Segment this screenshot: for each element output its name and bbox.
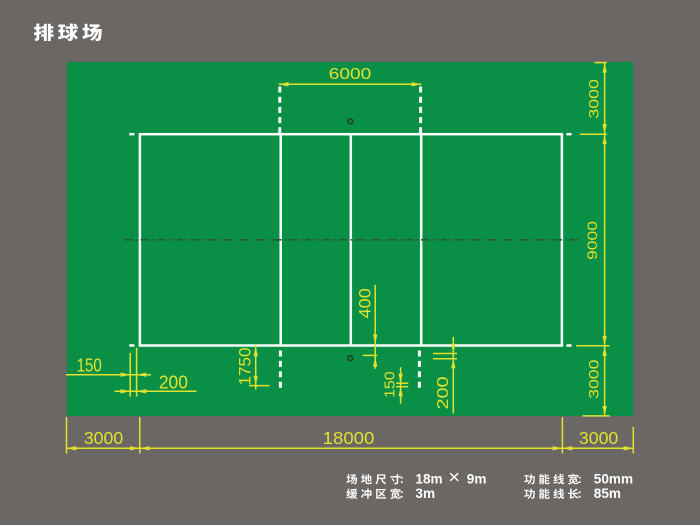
svg-text:150: 150 (383, 371, 399, 398)
svg-text:50mm: 50mm (594, 471, 633, 486)
svg-text:3m: 3m (415, 486, 435, 501)
svg-text::: : (400, 472, 404, 486)
svg-text:3000: 3000 (587, 359, 602, 399)
svg-text:3000: 3000 (586, 79, 601, 119)
svg-text:6000: 6000 (329, 66, 372, 83)
svg-text:150: 150 (77, 356, 102, 376)
svg-text::: : (578, 487, 582, 501)
svg-text:9000: 9000 (585, 221, 600, 260)
svg-text:18m: 18m (415, 471, 442, 486)
svg-text:3000: 3000 (579, 428, 619, 448)
svg-text:200: 200 (435, 376, 452, 409)
svg-text:85m: 85m (594, 486, 621, 501)
svg-text:200: 200 (159, 372, 188, 392)
svg-text::: : (400, 487, 404, 501)
svg-text:9m: 9m (467, 471, 487, 486)
svg-text::: : (578, 472, 582, 486)
svg-text:18000: 18000 (323, 428, 375, 448)
svg-text:3000: 3000 (84, 428, 123, 448)
svg-text:1750: 1750 (236, 347, 254, 385)
svg-text:400: 400 (356, 288, 374, 318)
